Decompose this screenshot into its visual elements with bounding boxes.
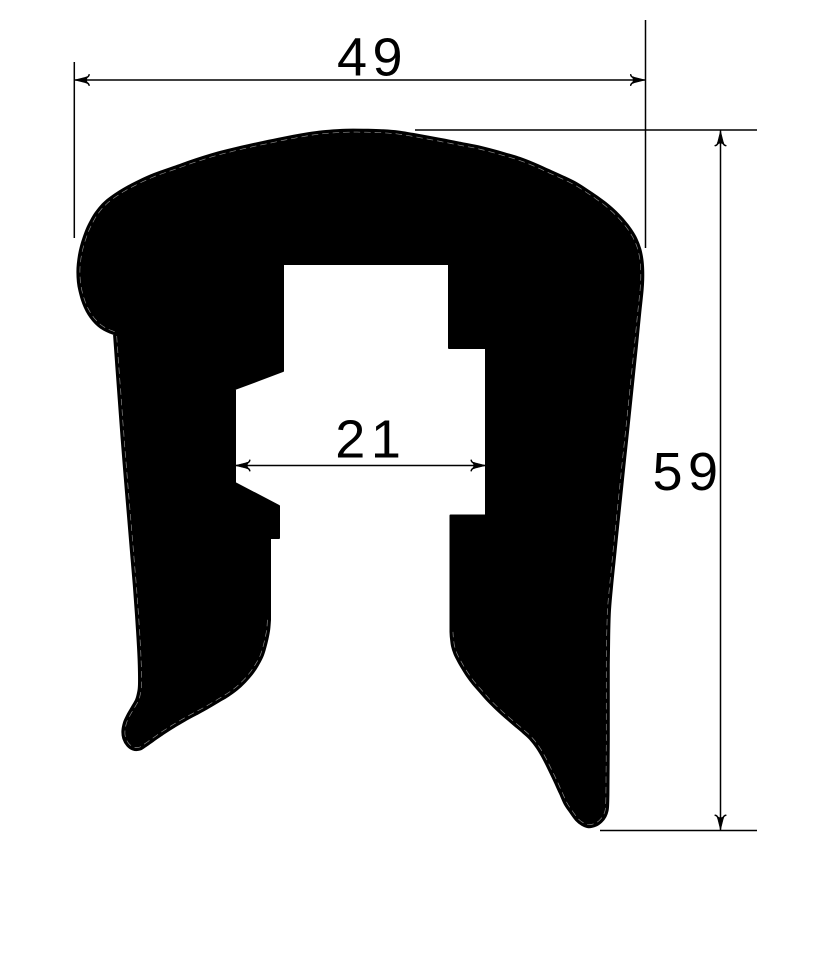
svg-text:49: 49 [337, 28, 408, 88]
svg-text:21: 21 [335, 410, 406, 470]
svg-text:59: 59 [653, 442, 724, 502]
